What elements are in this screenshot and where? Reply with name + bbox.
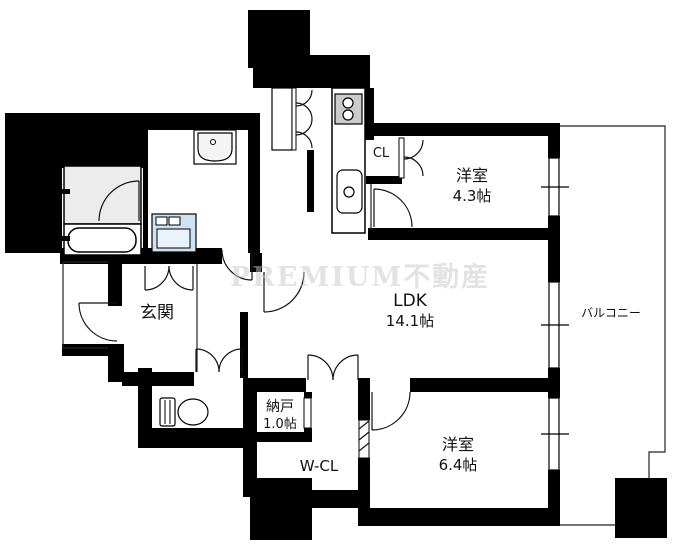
storage-room-area: 1.0帖 — [263, 417, 297, 432]
bedroom2-window — [541, 398, 569, 470]
wall-bedroom1-top — [364, 123, 560, 136]
bedroom2-area: 6.4帖 — [439, 456, 478, 474]
watermark-text: PREMIUM不動産 — [230, 261, 490, 293]
wall-kitchen-stub — [307, 150, 314, 212]
closet-label: CL — [373, 146, 390, 161]
kitchen-tall-storage — [272, 88, 312, 150]
ldk-double-doors — [308, 355, 358, 380]
shoe-cabinet-doors — [145, 266, 193, 290]
bedroom1-area: 4.3帖 — [453, 187, 492, 205]
washroom — [152, 130, 236, 252]
storage-room-label: 納戸 — [266, 399, 294, 415]
wall-top-pillar — [248, 10, 370, 88]
balcony-outline — [560, 126, 665, 525]
entrance-label: 玄関 — [140, 303, 174, 323]
closet-double-doors — [399, 138, 423, 178]
washbasin-faucet-icon — [211, 140, 216, 145]
bathtub-icon — [68, 228, 136, 252]
bathroom — [57, 166, 141, 255]
bedroom2-door — [372, 392, 410, 430]
kitchen — [272, 88, 365, 233]
bedroom2-label: 洋室 — [442, 435, 474, 454]
wall-washroom-right — [248, 113, 260, 253]
ldk-label: LDK — [393, 291, 428, 311]
kitchen-sink-icon — [337, 170, 362, 213]
washbasin-icon — [198, 133, 232, 161]
wall-washroom-top — [148, 113, 260, 130]
wall-bottom — [358, 508, 560, 526]
bedroom1-door — [374, 189, 412, 227]
floor-plan-image: 玄関 LDK 14.1帖 洋室 4.3帖 洋室 6.4帖 納戸 1.0帖 W-C… — [0, 0, 681, 551]
ldk-area: 14.1帖 — [386, 312, 434, 330]
toilet-double-doors — [196, 349, 242, 372]
floor-plan-svg: 玄関 LDK 14.1帖 洋室 4.3帖 洋室 6.4帖 納戸 1.0帖 W-C… — [0, 0, 681, 551]
storage-room-door — [304, 398, 311, 428]
balcony-label: バルコニー — [581, 306, 641, 320]
pillar-bottom-right — [615, 478, 667, 538]
entrance-porch-outline — [63, 262, 108, 348]
wcl-label: W-CL — [300, 457, 339, 475]
tub-faucet-icon — [57, 236, 70, 241]
windows — [541, 158, 569, 470]
entrance-door — [79, 303, 117, 341]
ldk-window — [541, 282, 569, 368]
bath-faucet-icon — [57, 189, 70, 194]
bathroom-floor — [64, 166, 141, 224]
pillar-bottom-left — [250, 478, 312, 540]
stove-icon — [335, 94, 362, 124]
bedroom1-window — [541, 158, 569, 216]
bedroom1-label: 洋室 — [456, 166, 488, 185]
washing-machine-icon — [152, 214, 196, 252]
toilet-icon — [160, 398, 208, 426]
wcl-sliding-door — [359, 420, 369, 458]
wall-bedroom1-bottom — [368, 228, 560, 240]
